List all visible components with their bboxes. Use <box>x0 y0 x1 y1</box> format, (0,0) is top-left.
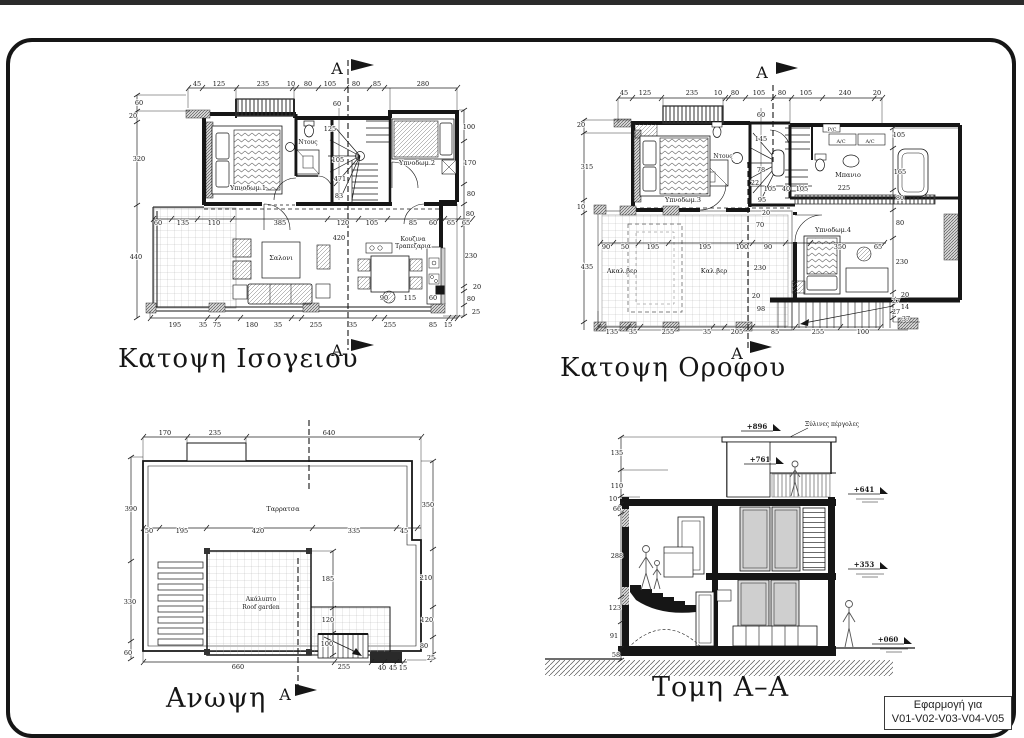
dim-label: 60 <box>135 99 143 107</box>
dim-label: 100 <box>463 123 475 131</box>
dim-label: 85 <box>771 328 779 336</box>
section-letter: A <box>278 685 291 704</box>
dim-label: 135 <box>611 449 623 457</box>
dim-label: 20 <box>873 89 881 97</box>
dim-label: 20 <box>577 121 585 129</box>
roof-plan-drawing: 1702356403903306035021012080255019542033… <box>110 415 470 720</box>
dim-label: 105 <box>800 89 812 97</box>
room-label: Υπνοδωμ.1 <box>229 184 266 192</box>
dim-label: 80 <box>352 80 360 88</box>
dim-label: 255 <box>812 328 824 336</box>
dim-label: 80 <box>731 89 739 97</box>
dim-label: 195 <box>699 243 711 251</box>
dim-label: 60 <box>757 111 765 119</box>
room-label: Υπνοδωμ.2 <box>398 159 435 167</box>
dim-label: 100 <box>857 328 869 336</box>
dim-label: 35 <box>274 321 282 329</box>
dim-label: 170 <box>464 159 476 167</box>
dim-label: 100 <box>321 640 333 648</box>
dim-label: 110 <box>611 482 623 490</box>
dim-label: 640 <box>323 429 335 437</box>
architectural-sheet: { "sheet": { "bg": "#ffffff", "line_colo… <box>0 0 1024 728</box>
dim-label: 195 <box>169 321 181 329</box>
dim-label: 105 <box>893 131 905 139</box>
dim-label: 240 <box>839 89 851 97</box>
room-label: Σαλονι <box>269 254 293 262</box>
section-flag-icon <box>776 62 798 74</box>
dim-label: 35 <box>199 321 207 329</box>
dim-label: 20 <box>473 283 481 291</box>
dim-label: 90 <box>380 294 388 302</box>
room-label: Ταρρατσα <box>266 505 300 513</box>
stair-section <box>630 585 696 613</box>
dim-label: 335 <box>348 527 360 535</box>
dim-label: 20 <box>752 292 760 300</box>
dim-label: 120 <box>322 616 334 624</box>
dim-label: 255 <box>338 663 350 671</box>
section-title: Τομη Α–Α <box>652 672 789 703</box>
dim-label: 105 <box>796 185 808 193</box>
dim-label: 10 <box>287 80 295 88</box>
dim-label: 60 <box>429 294 437 302</box>
equipment-label: A/C <box>835 139 845 145</box>
dim-label: 95 <box>758 196 766 204</box>
dim-label: 120 <box>421 616 433 624</box>
uf-bed3 <box>634 124 710 202</box>
room-label: Καλ.βερ <box>701 267 728 275</box>
dim-label: 14 <box>901 303 909 311</box>
dim-label: 435 <box>581 263 593 271</box>
room-label: Ακαλ.βερ <box>606 267 637 275</box>
dim-label: 65 <box>874 243 882 251</box>
upper-floor-plan-drawing: 4512523510801058010524020203151043510516… <box>560 55 1000 390</box>
dim-label: 125 <box>639 89 651 97</box>
dim-label: 25 <box>472 308 480 316</box>
dim-label: 660 <box>232 663 244 671</box>
dim-label: 230 <box>465 252 477 260</box>
dim-label: 185 <box>322 575 334 583</box>
room-label: Ντους <box>713 153 733 160</box>
section-letter: A <box>755 63 768 82</box>
annotation: Ξύλινες πέργολες <box>805 421 860 428</box>
dim-label: 70 <box>756 221 764 229</box>
dim-label: 125 <box>213 80 225 88</box>
dim-label: 205 <box>731 328 743 336</box>
roof-pergola-slats <box>158 562 203 645</box>
dim-label: 58 <box>612 651 620 659</box>
room-label: Υπνοδωμ.4 <box>814 226 851 234</box>
dim-label: 105 <box>366 219 378 227</box>
room-label: Roof garden <box>242 604 280 611</box>
stair-direction-arrow-icon <box>800 319 809 326</box>
dim-label: 91 <box>610 632 618 640</box>
dim-label: 90 <box>764 243 772 251</box>
dim-label: 105 <box>753 89 765 97</box>
dim-label: 440 <box>130 253 142 261</box>
dim-label: 35 <box>349 321 357 329</box>
basin-icon <box>286 143 295 152</box>
dim-label: 66 <box>613 505 621 513</box>
dim-label: 80 <box>896 219 904 227</box>
dim-label: 80 <box>896 194 904 202</box>
dim-label: 180 <box>246 321 258 329</box>
dim-label: 27 <box>892 297 900 305</box>
dim-label: 75 <box>213 321 221 329</box>
dim-label: 105 <box>764 185 776 193</box>
room-label: Κουζινα <box>400 236 425 243</box>
dim-label: 85 <box>429 321 437 329</box>
section-flag-icon <box>750 341 772 353</box>
dim-label: 20 <box>129 112 137 120</box>
dim-label: 230 <box>896 258 908 266</box>
dim-label: 60 <box>124 649 132 657</box>
dim-label: 45 <box>389 664 397 672</box>
gf-patio-tiles <box>154 208 236 308</box>
dim-label: 80 <box>467 190 475 198</box>
dim-label: 330 <box>124 598 136 606</box>
application-label-line2: V01-V02-V03-V04-V05 <box>886 713 1010 727</box>
dim-label: 80 <box>466 210 474 218</box>
dim-label: 85 <box>373 80 381 88</box>
ground-floor-title: Κατοψη Ισογειου <box>118 344 359 374</box>
room-label: Τραπεζαρια <box>395 243 431 250</box>
dim-label: 105 <box>324 80 336 88</box>
dim-label: 45 <box>620 89 628 97</box>
dim-label: 170 <box>159 429 171 437</box>
elevation-mark: +641 <box>854 485 875 494</box>
roof-plan-title: Ανωψη <box>166 683 266 714</box>
dim-label: 40 <box>378 664 386 672</box>
dim-label: 230 <box>754 264 766 272</box>
dim-label: 50 <box>145 527 153 535</box>
dim-label: 320 <box>133 155 145 163</box>
gf-living-furniture <box>233 239 330 304</box>
dim-label: 90 <box>602 243 610 251</box>
dim-label: 85 <box>409 219 417 227</box>
dim-label: 80 <box>467 295 475 303</box>
dim-label: 235 <box>257 80 269 88</box>
uf-external-stair <box>770 302 908 330</box>
section-letter: A <box>330 59 343 78</box>
room-label: Υπνοδωμ.3 <box>664 196 701 204</box>
dim-label: 45 <box>193 80 201 88</box>
dim-label: 37 <box>902 315 910 323</box>
upper-floor-title: Κατοψη Οροφου <box>560 353 786 383</box>
dim-label: 40 <box>782 185 790 193</box>
dim-label: 98 <box>757 305 765 313</box>
elevation-mark: +353 <box>854 560 875 569</box>
dim-label: 255 <box>662 328 674 336</box>
dim-label: 60 <box>154 219 162 227</box>
dim-label: 100 <box>736 243 748 251</box>
dim-label: 350 <box>422 501 434 509</box>
dim-label: 27 <box>892 308 900 316</box>
dim-label: 78 <box>757 166 765 174</box>
dim-label: 235 <box>209 429 221 437</box>
equipment-label: A/C <box>864 139 874 145</box>
scan-edge-bar <box>0 0 1024 5</box>
dim-label: 120 <box>337 219 349 227</box>
dim-label: 225 <box>838 184 850 192</box>
dim-label: 10 <box>609 495 617 503</box>
dim-label: 10 <box>714 89 722 97</box>
dim-label: 50 <box>621 243 629 251</box>
section-flag-icon <box>295 684 317 696</box>
dim-label: 125 <box>324 125 336 133</box>
dim-label: 288 <box>611 552 623 560</box>
dim-label: 350 <box>834 243 846 251</box>
dim-label: 80 <box>304 80 312 88</box>
sec-pergola <box>722 437 836 497</box>
elevation-mark: +896 <box>747 422 768 431</box>
elevation-mark: +060 <box>878 635 899 644</box>
room-label: Ακάλυπτο <box>245 596 277 603</box>
dim-label: 165 <box>894 168 906 176</box>
dim-label: 35 <box>703 328 711 336</box>
dim-label: 145 <box>755 135 767 143</box>
application-label-box: Εφαρμογή για V01-V02-V03-V04-V05 <box>884 696 1012 730</box>
dim-label: 195 <box>647 243 659 251</box>
application-label-line1: Εφαρμογή για <box>886 699 1010 713</box>
elevation-mark: +761 <box>750 455 771 464</box>
room-label: Ντους <box>298 139 318 146</box>
dim-label: 255 <box>310 321 322 329</box>
dim-label: 195 <box>176 527 188 535</box>
dim-label: 83 <box>335 192 343 200</box>
uf-bathroom-fixtures <box>815 124 928 196</box>
dim-label: 65 <box>462 219 470 227</box>
dim-label: 123 <box>609 604 621 612</box>
dim-label: 235 <box>686 89 698 97</box>
dim-label: 110 <box>208 219 220 227</box>
section-flag-icon <box>351 59 374 71</box>
dim-label: 80 <box>778 89 786 97</box>
dim-label: 20 <box>901 291 909 299</box>
dim-label: 315 <box>581 163 593 171</box>
dim-label: 135 <box>177 219 189 227</box>
dim-label: 420 <box>252 527 264 535</box>
dim-label: 115 <box>404 294 416 302</box>
dim-label: 390 <box>125 505 137 513</box>
dim-label: 80 <box>420 642 428 650</box>
dim-label: 35 <box>629 328 637 336</box>
dim-label: 280 <box>417 80 429 88</box>
dim-label: 471 <box>334 175 346 183</box>
dim-label: 15 <box>399 664 407 672</box>
dim-label: 45 <box>400 527 408 535</box>
dim-label: 105 <box>332 156 344 164</box>
dim-label: 420 <box>333 234 345 242</box>
dim-label: 25 <box>427 654 435 662</box>
ground-floor-plan-drawing: 4512523510801058085280602032044010017080… <box>100 55 510 380</box>
section-drawing: +896+761+641+353+060Ξύλινες πέργολες1351… <box>540 408 1010 700</box>
room-label: Μπανιο <box>835 171 861 179</box>
dim-label: 385 <box>274 219 286 227</box>
dim-label: 255 <box>384 321 396 329</box>
equipment-label: P/C <box>828 127 837 133</box>
dim-label: 20 <box>762 209 770 217</box>
dim-label: 65 <box>447 219 455 227</box>
dim-label: 60 <box>429 219 437 227</box>
dim-label: 22 <box>751 179 759 187</box>
dim-label: 10 <box>577 203 585 211</box>
dim-label: 15 <box>444 321 452 329</box>
dim-label: 210 <box>420 574 432 582</box>
dim-label: 135 <box>606 328 618 336</box>
dim-label: 60 <box>333 100 341 108</box>
